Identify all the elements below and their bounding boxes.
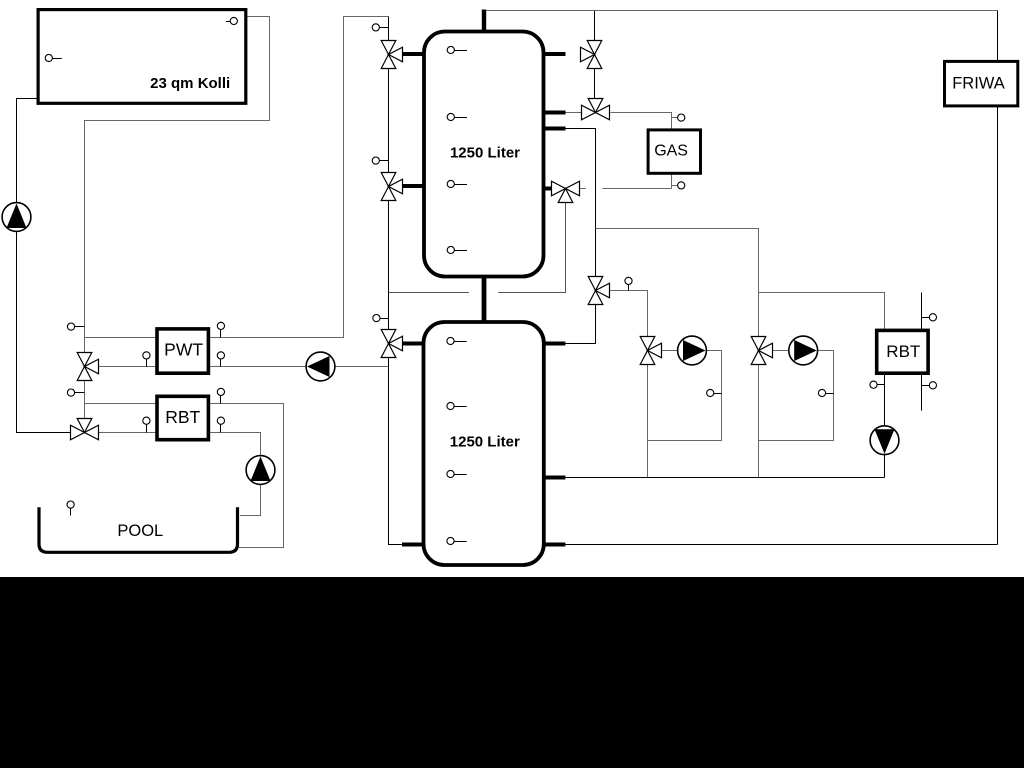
svg-text:FRIWA: FRIWA [952, 75, 1005, 93]
svg-text:RBT: RBT [165, 407, 200, 427]
svg-text:1250 Liter: 1250 Liter [450, 144, 520, 161]
svg-text:POOL: POOL [117, 522, 163, 540]
svg-text:1250 Liter: 1250 Liter [450, 434, 520, 451]
svg-text:RBT: RBT [886, 342, 920, 361]
svg-text:GAS: GAS [654, 143, 688, 160]
svg-text:PWT: PWT [164, 340, 203, 360]
svg-text:23 qm Kolli: 23 qm Kolli [150, 75, 230, 92]
